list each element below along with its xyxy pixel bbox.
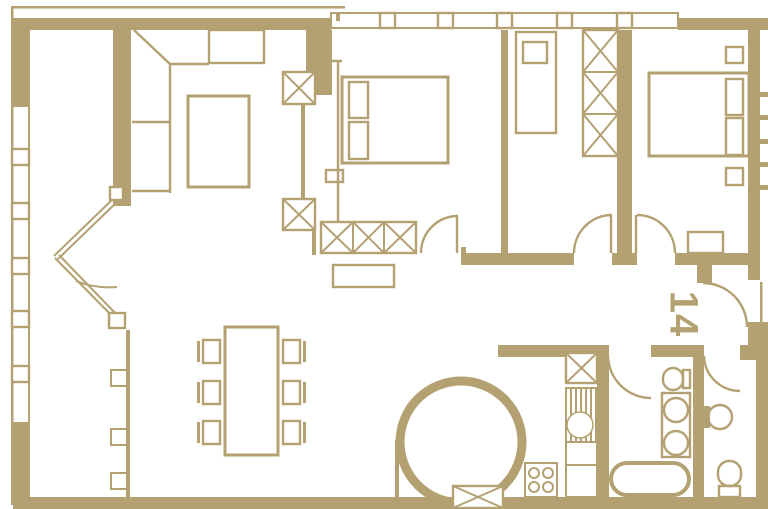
bathtub (611, 463, 689, 495)
floor-plan-screenshot: 14 (0, 0, 768, 509)
interior-walls (113, 30, 768, 497)
toilet-wc (718, 461, 741, 497)
study-wardrobe (583, 30, 618, 156)
double-vanity (662, 393, 690, 457)
kitchen-sink (567, 412, 593, 438)
door-apartment-entry (703, 283, 747, 327)
dining-chairs (197, 340, 306, 444)
west-window (12, 106, 29, 423)
door-study (574, 215, 612, 253)
stove (525, 463, 557, 497)
dining-table (225, 327, 278, 455)
door-bedroom2 (636, 215, 675, 253)
door-bedroom1 (421, 216, 458, 253)
shaft-column-bottom (283, 199, 315, 230)
study-desk (516, 32, 556, 133)
floor-plan-svg: 14 (0, 0, 768, 509)
toilet-bathroom (663, 368, 690, 390)
kitchen-counter (566, 353, 597, 497)
circular-structure (395, 381, 522, 503)
door-bathroom (608, 356, 651, 398)
north-window (331, 13, 678, 28)
shaft-column-top (283, 72, 315, 104)
sideboard (333, 265, 394, 287)
wc-basin (704, 405, 732, 429)
shaft-on-wall (453, 486, 503, 508)
bedroom1 (321, 61, 448, 253)
partition-shelves (111, 370, 127, 489)
bedroom2 (649, 47, 749, 253)
unit-number-label: 14 (661, 291, 705, 338)
entry-double-door (54, 187, 125, 328)
corner-sofa (132, 30, 264, 193)
area-rug (188, 96, 249, 187)
door-wc (704, 356, 740, 391)
